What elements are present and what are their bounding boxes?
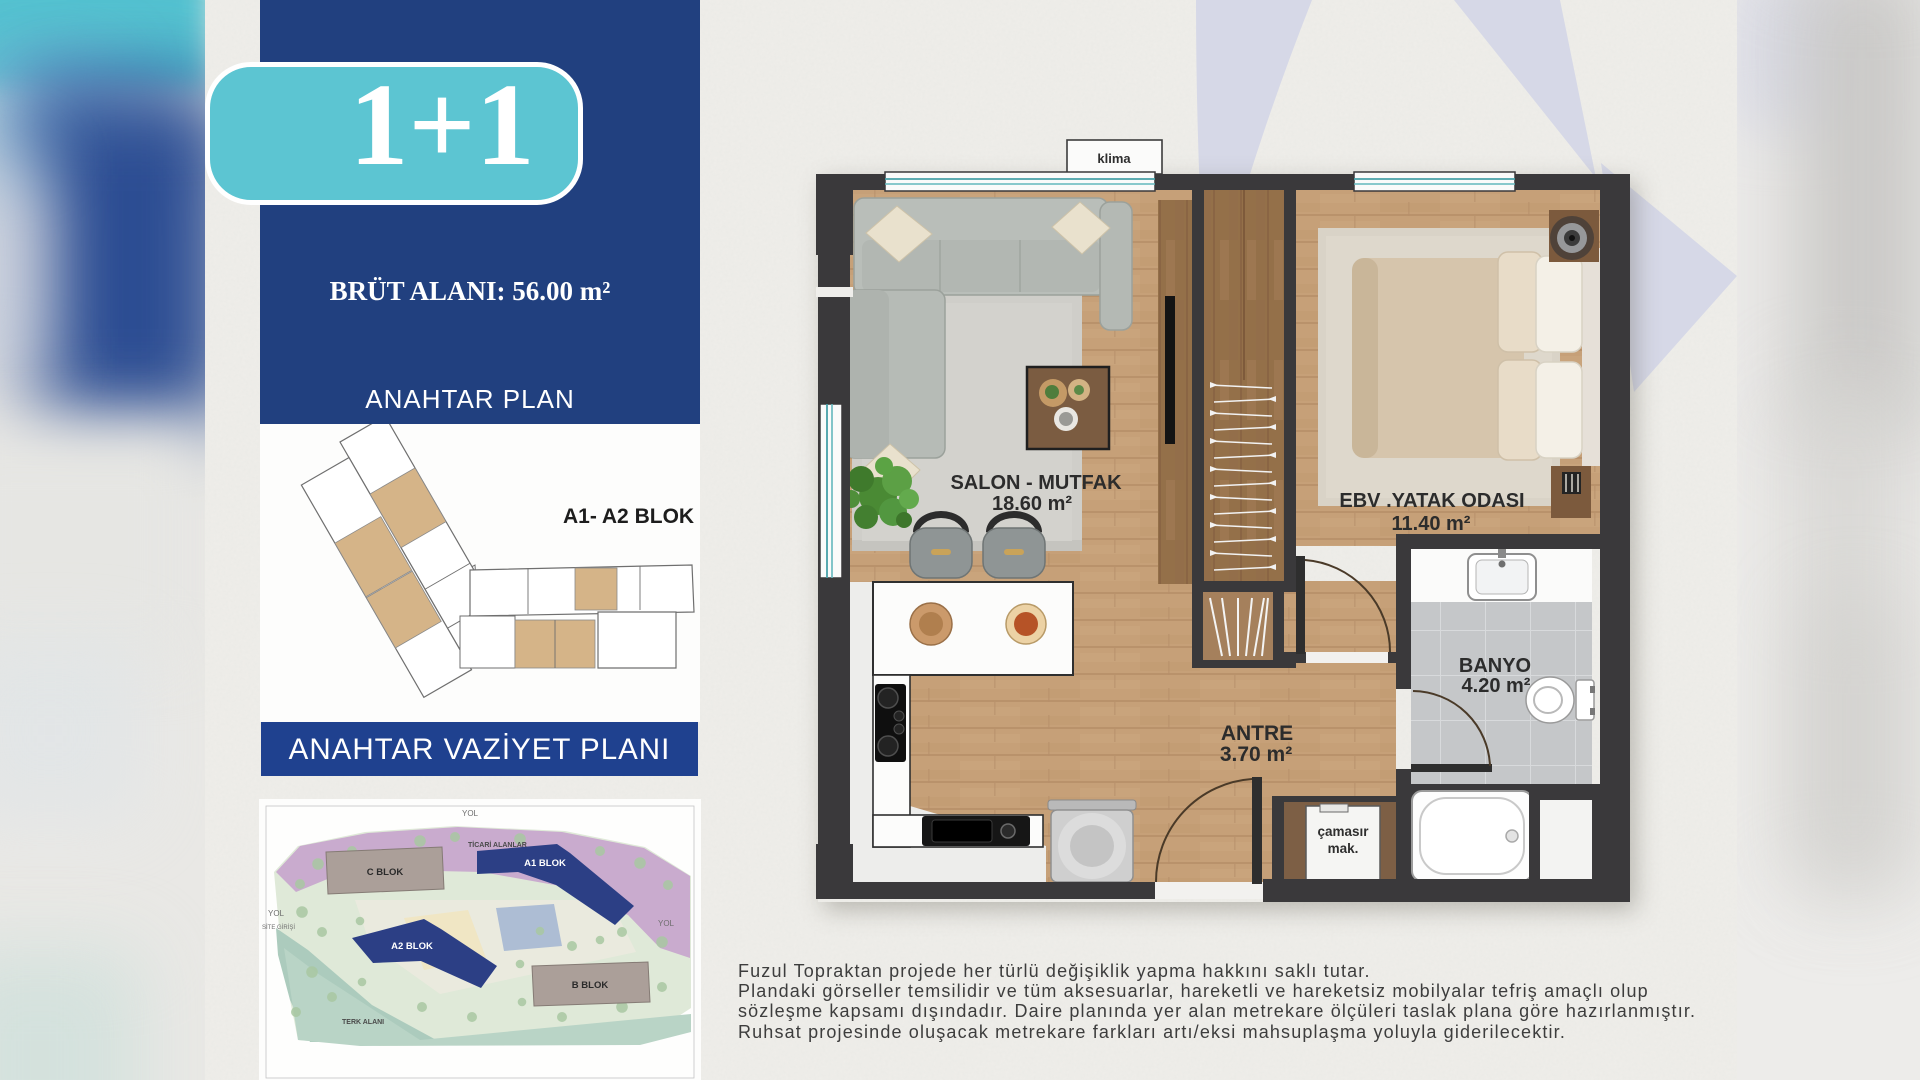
- svg-text:11.40 m²: 11.40 m²: [1392, 513, 1471, 535]
- svg-text:BANYO: BANYO: [1459, 655, 1531, 677]
- svg-text:18.60 m²: 18.60 m²: [992, 493, 1072, 515]
- svg-text:çamasır: çamasır: [1317, 824, 1369, 839]
- svg-text:mak.: mak.: [1328, 841, 1359, 856]
- svg-text:3.70 m²: 3.70 m²: [1220, 743, 1292, 766]
- svg-text:ANTRE: ANTRE: [1221, 722, 1293, 745]
- svg-text:EBV .YATAK ODASI: EBV .YATAK ODASI: [1339, 490, 1524, 512]
- svg-text:SALON - MUTFAK: SALON - MUTFAK: [950, 472, 1122, 494]
- svg-text:4.20 m²: 4.20 m²: [1462, 675, 1531, 697]
- svg-text:klima: klima: [1097, 151, 1131, 166]
